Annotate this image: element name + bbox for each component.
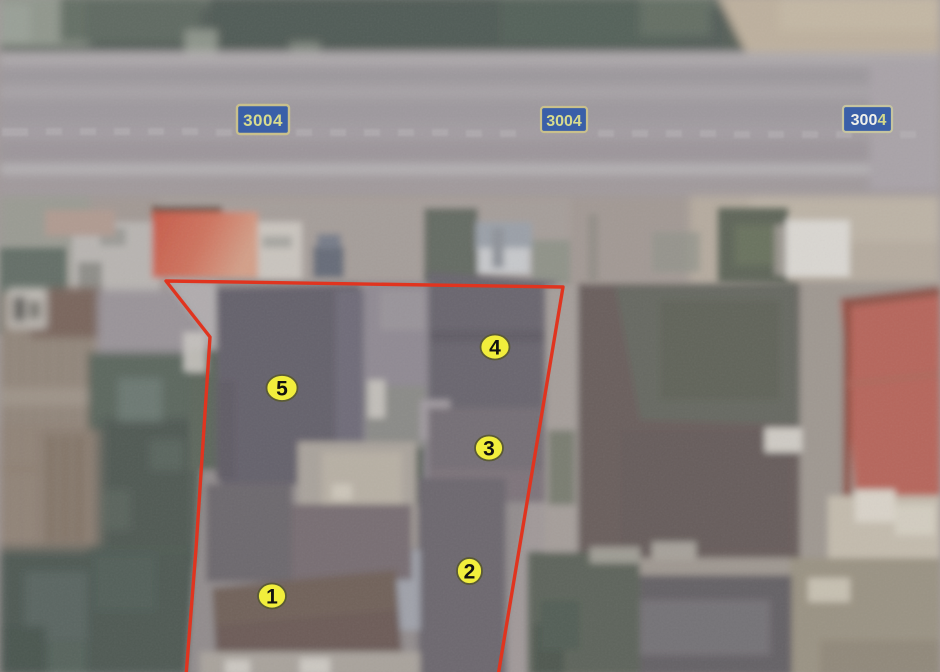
svg-text:4: 4 [878,112,887,129]
svg-text:5: 5 [276,378,288,401]
svg-text:3: 3 [483,438,495,461]
svg-text:3004: 3004 [546,113,582,130]
svg-text:3004: 3004 [243,111,283,130]
svg-text:300: 300 [851,112,878,129]
svg-text:2: 2 [464,561,476,584]
svg-text:4: 4 [489,337,501,360]
svg-text:1: 1 [266,586,278,609]
